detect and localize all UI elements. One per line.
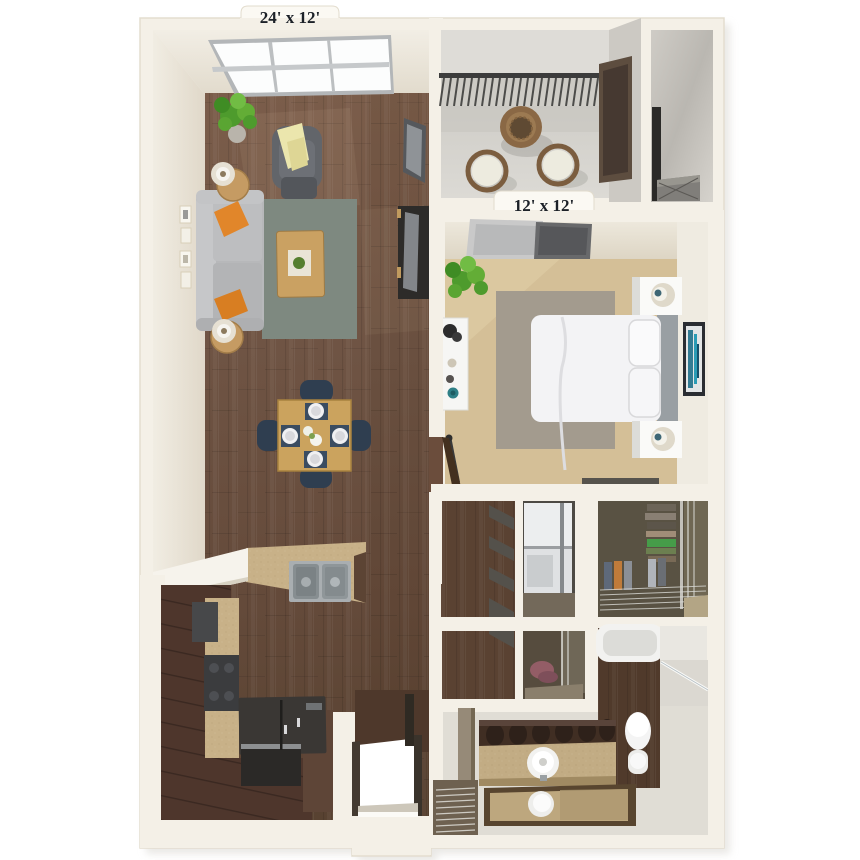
- svg-text:12' x 12': 12' x 12': [514, 196, 574, 215]
- svg-text:24' x 12': 24' x 12': [260, 8, 320, 27]
